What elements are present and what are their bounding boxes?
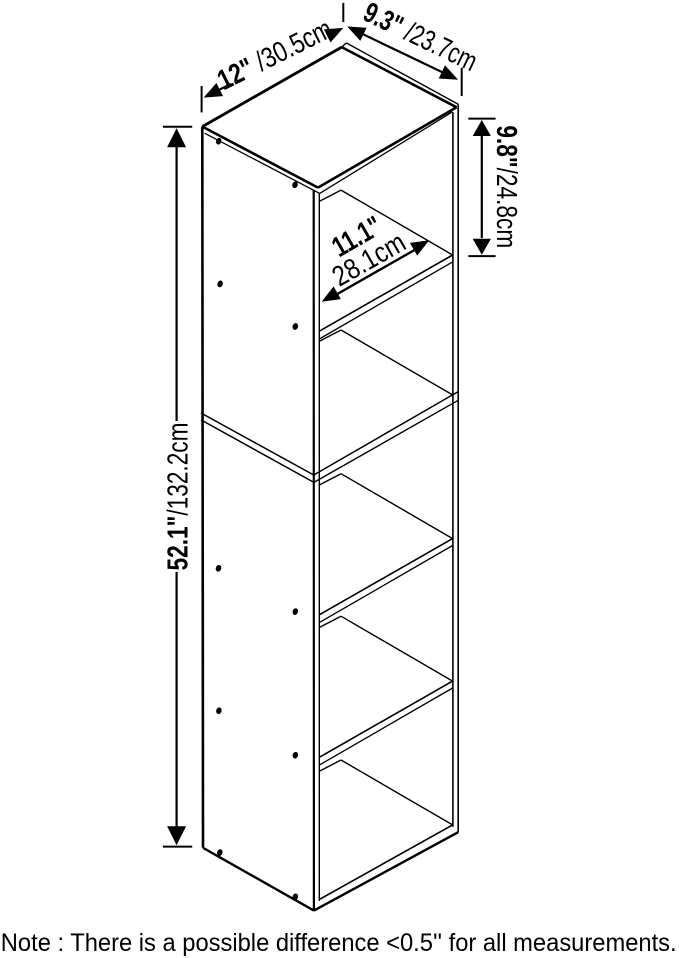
svg-text:9.8"/24.8cm: 9.8"/24.8cm — [490, 125, 521, 248]
svg-text:Note : There is a possible dif: Note : There is a possible difference <0… — [1, 929, 677, 957]
svg-text:52.1"/132.2cm: 52.1"/132.2cm — [163, 423, 194, 571]
